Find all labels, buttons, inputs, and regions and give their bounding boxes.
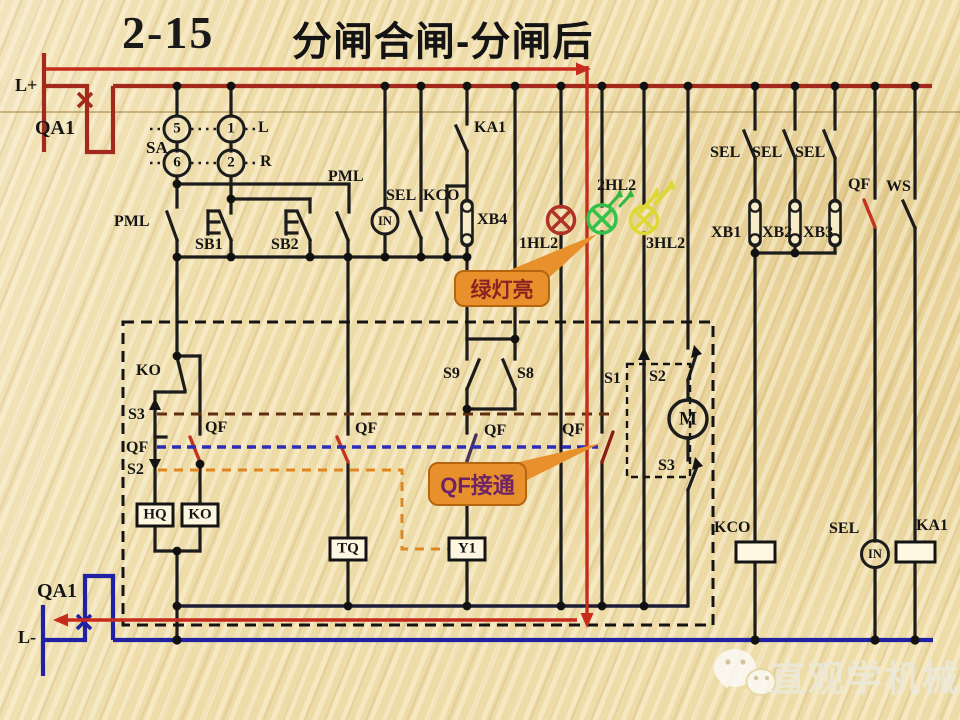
wechat-icon	[714, 649, 776, 695]
label-pml-mid: PML	[328, 169, 364, 185]
label-sel-bottom: SEL	[829, 521, 859, 537]
label-qf-tq: QF	[355, 421, 377, 437]
fuse-xb4	[462, 200, 473, 246]
label-tq-box: TQ	[337, 542, 359, 557]
label-in-bottom: IN	[868, 548, 882, 561]
callout-qf-closed: QF接通	[428, 462, 527, 506]
junction-dots	[172, 82, 919, 645]
label-xb4: XB4	[477, 212, 507, 228]
label-s3-mid: S3	[658, 458, 675, 474]
label-ws: WS	[886, 179, 911, 195]
slide-number: 2-15	[122, 6, 214, 59]
qf-lamp-contact-blade	[602, 432, 613, 462]
slide-title: 分闸合闸-分闸后	[292, 9, 593, 67]
flow-arrows	[46, 63, 594, 629]
label-l-plus: L+	[15, 76, 37, 94]
sa-contact-1: 1	[227, 122, 235, 137]
label-qf-y1: QF	[484, 423, 506, 439]
sel-top-contact-blade	[410, 212, 421, 238]
label-kco-top: KCO	[423, 188, 459, 204]
device-boxes	[137, 504, 935, 562]
label-ko-box: KO	[188, 508, 211, 523]
callout-green-lamp: 绿灯亮	[454, 270, 550, 307]
round-devices	[372, 208, 889, 568]
flow-arrowhead-left	[53, 614, 68, 627]
label-pml-left: PML	[114, 214, 150, 230]
label-in-top: IN	[378, 215, 392, 228]
kco-coil-rect	[736, 542, 775, 562]
position-switch-arrows	[149, 345, 703, 471]
fuse-xb1	[750, 200, 761, 246]
lamp-green-2hl2-icon	[588, 205, 616, 233]
label-sb2: SB2	[271, 237, 299, 253]
s1-arrow-icon	[638, 347, 650, 360]
sa-contact-5: 5	[173, 122, 181, 137]
label-2hl2: 2HL2	[597, 178, 636, 194]
watermark-text: 直观学机械	[770, 650, 960, 702]
label-qf-lamp: QF	[562, 422, 584, 438]
qf-right-contact-blade	[864, 200, 875, 227]
label-xb3: XB3	[803, 225, 833, 241]
qf-ko-contact-blade	[190, 437, 200, 462]
label-s8: S8	[517, 366, 534, 382]
label-s1: S1	[604, 371, 621, 387]
s3-left-arrow-icon	[149, 398, 161, 410]
sel-r3-contact-blade	[824, 131, 835, 158]
label-sel-r3: SEL	[795, 145, 825, 161]
s9-contact-blade	[467, 360, 479, 389]
label-qf-ko: QF	[205, 420, 227, 436]
ka1-contact-blade	[456, 126, 467, 151]
label-3hl2: 3HL2	[646, 236, 685, 252]
label-s9: S9	[443, 366, 460, 382]
ws-contact-blade	[903, 201, 915, 228]
ko-contact-blade	[177, 357, 185, 390]
slide: 2-15 分闸合闸-分闸后 L+ QA1 SA 5 1 6 2 L R PML …	[0, 0, 960, 720]
label-ko-contact: KO	[136, 363, 161, 379]
label-l-minus: L-	[18, 628, 36, 646]
sa-contact-2: 2	[227, 156, 235, 171]
label-kco-coil: KCO	[714, 520, 750, 536]
label-hq-box: HQ	[143, 508, 166, 523]
schematic-drawing	[0, 0, 960, 720]
sa-contact-6: 6	[173, 156, 181, 171]
label-s2-mid: S2	[649, 369, 666, 385]
label-s3-left: S3	[128, 407, 145, 423]
pml-left-contact-blade	[167, 212, 177, 240]
s8-contact-blade	[503, 360, 515, 389]
lamp-red-1hl2-icon	[548, 207, 575, 234]
label-ka1-coil: KA1	[916, 518, 948, 534]
kco-top-contact-blade	[437, 213, 447, 239]
sel-r2-contact-blade	[784, 131, 795, 158]
label-sel-r1: SEL	[710, 145, 740, 161]
label-xb1: XB1	[711, 225, 741, 241]
label-sel-top: SEL	[386, 188, 416, 204]
label-ka1-top: KA1	[474, 120, 506, 136]
ka1-coil-rect	[896, 542, 935, 562]
label-qa1-top: QA1	[35, 118, 75, 138]
label-xb2: XB2	[762, 225, 792, 241]
yellow-glow-arrows-icon	[641, 179, 676, 211]
label-m-motor: M	[679, 410, 697, 429]
pml-mid-contact-blade	[337, 213, 348, 240]
sb2-contact-blade	[298, 213, 310, 240]
label-y1-box: Y1	[458, 542, 476, 557]
label-qf-left: QF	[126, 440, 148, 456]
label-sa: SA	[146, 139, 168, 156]
label-sb1: SB1	[195, 237, 223, 253]
label-sa-right: R	[260, 154, 272, 170]
qf-tq-contact-blade	[337, 437, 348, 462]
label-qa1-bottom: QA1	[37, 581, 77, 601]
label-s2-left: S2	[127, 462, 144, 478]
label-sa-left: L	[258, 120, 269, 136]
label-sel-r2: SEL	[752, 145, 782, 161]
mechanism-dashed-box	[123, 322, 713, 625]
label-qf-right: QF	[848, 177, 870, 193]
label-1hl2: 1HL2	[519, 236, 558, 252]
